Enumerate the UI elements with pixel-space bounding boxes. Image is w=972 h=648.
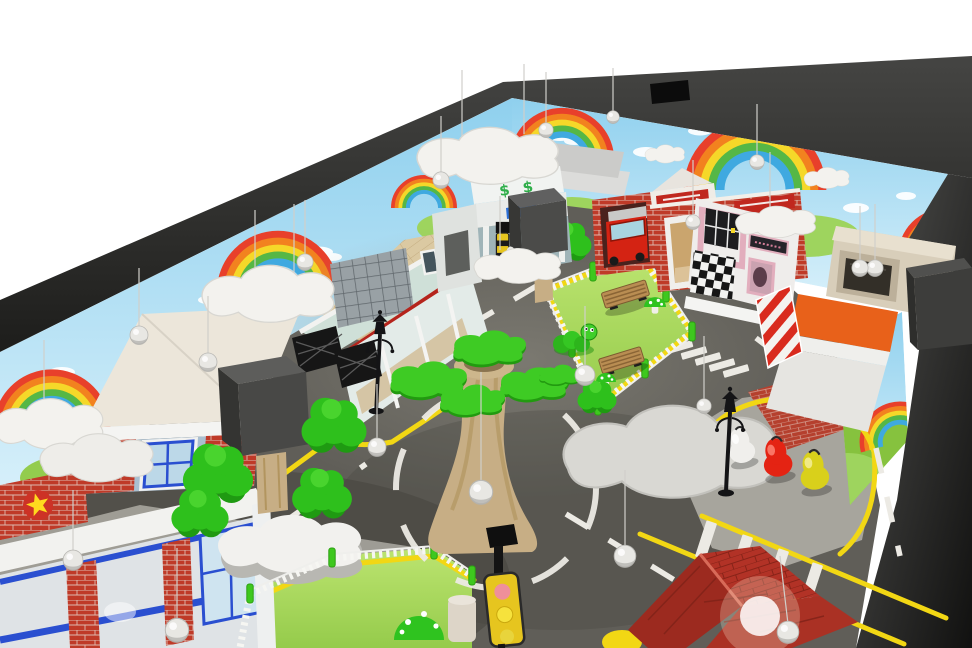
wall-vent-tab	[650, 80, 690, 104]
pendant-lamp-tree	[469, 480, 492, 505]
police-star-emblem	[23, 490, 53, 520]
cylinder-seat	[448, 595, 476, 642]
scene-canvas: $ $	[0, 0, 972, 648]
pendant-lamp-house	[777, 621, 799, 644]
theater-checkered-floor	[690, 250, 736, 300]
fire-truck	[606, 206, 648, 266]
cube-tree-right	[906, 258, 972, 350]
kids-playtown-render: $ $	[0, 0, 972, 648]
